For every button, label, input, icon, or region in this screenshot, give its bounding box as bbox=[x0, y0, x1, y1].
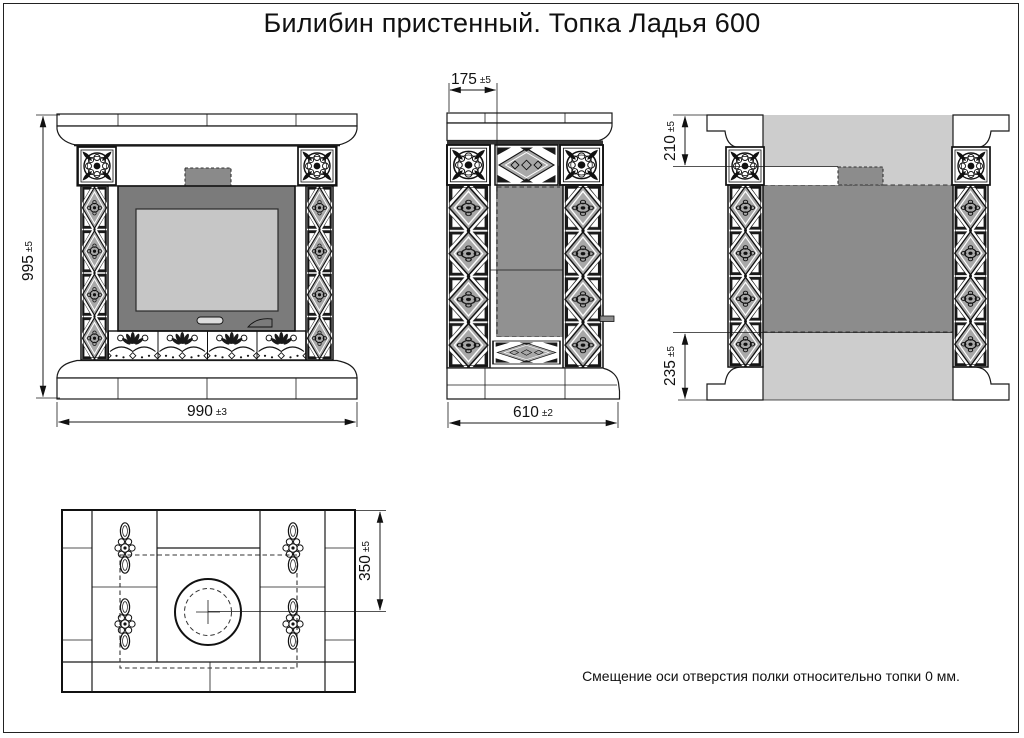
svg-text:235±5: 235±5 bbox=[662, 346, 679, 386]
svg-text:350±5: 350±5 bbox=[357, 541, 374, 581]
dimension-side-depth: 610±2 bbox=[448, 402, 618, 428]
side-pin bbox=[600, 316, 614, 322]
back-firebox bbox=[763, 185, 953, 332]
side-firebox bbox=[490, 185, 563, 337]
drawing-canvas: 995±5 990±3 bbox=[0, 0, 1024, 738]
back-flue-opening bbox=[838, 167, 883, 185]
offset-note: Смещение оси отверстия полки относительн… bbox=[575, 668, 967, 684]
drawing-sheet: Билибин пристенный. Топка Ладья 600 bbox=[0, 0, 1024, 738]
firebox-handle bbox=[197, 317, 223, 324]
svg-text:175±5: 175±5 bbox=[451, 71, 491, 88]
dimension-front-width: 990±3 bbox=[57, 402, 357, 427]
front-firebox-glass bbox=[136, 209, 278, 311]
front-view bbox=[57, 114, 357, 399]
front-vent-opening bbox=[185, 168, 231, 186]
dimension-front-height: 995±5 bbox=[20, 115, 60, 398]
back-view bbox=[678, 115, 1009, 400]
svg-text:610±2: 610±2 bbox=[513, 404, 553, 421]
side-view bbox=[447, 113, 620, 399]
top-plan-view bbox=[62, 510, 355, 692]
svg-text:210±5: 210±5 bbox=[662, 121, 679, 161]
svg-text:990±3: 990±3 bbox=[187, 403, 227, 420]
svg-text:995±5: 995±5 bbox=[20, 241, 37, 281]
